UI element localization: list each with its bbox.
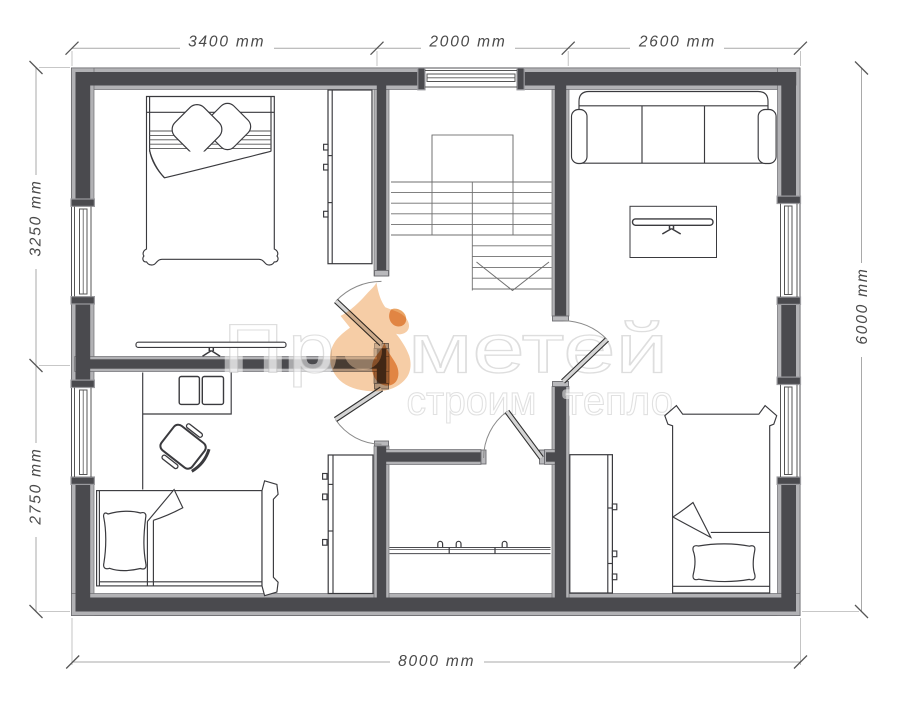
svg-text:3400 mm: 3400 mm [188,34,265,51]
svg-text:2000 mm: 2000 mm [428,34,506,51]
svg-text:3250 mm: 3250 mm [28,179,45,256]
svg-text:2600 mm: 2600 mm [638,34,716,51]
svg-text:строим: строим [407,378,537,424]
svg-text:метей: метей [408,310,668,388]
svg-text:Пр: Пр [223,310,340,388]
svg-text:6000 mm: 6000 mm [854,267,871,344]
svg-text:8000 mm: 8000 mm [398,653,475,670]
svg-text:тепло: тепло [565,378,673,424]
svg-text:2750 mm: 2750 mm [28,447,45,525]
